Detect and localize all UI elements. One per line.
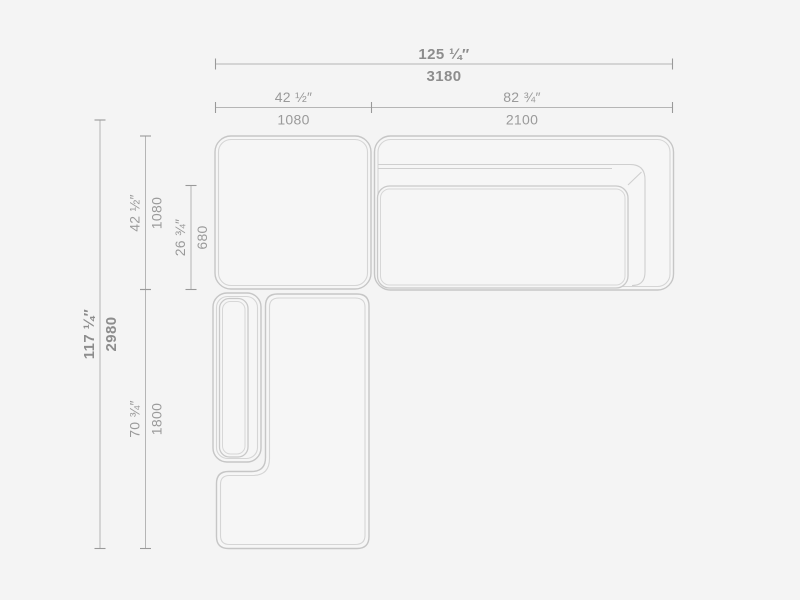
dim-chaise-length: 70 ¾″ 1800	[127, 290, 165, 549]
dimensions: 125 ¼″ 3180 42 ½″ 1080 82 ¾″ 2100 117 ¼″…	[81, 46, 673, 549]
dim-seat-depth-mm: 680	[194, 225, 210, 249]
dim-corner-depth-mm: 1080	[149, 197, 165, 229]
chaise-armrest-cushion-outline	[220, 299, 249, 458]
dim-chaise-length-inches: 70 ¾″	[127, 400, 143, 438]
dim-corner-depth-inches: 42 ½″	[127, 194, 143, 232]
dim-overall-depth-inches: 117 ¼″	[81, 309, 98, 359]
dim-section-widths: 42 ½″ 1080 82 ¾″ 2100	[216, 89, 673, 128]
dim-overall-width-inches: 125 ¼″	[418, 46, 469, 63]
dim-chaise-length-mm: 1800	[149, 403, 165, 435]
dim-seat-depth-inches: 26 ¾″	[172, 219, 188, 257]
dim-corner-depth: 42 ½″ 1080	[127, 136, 165, 290]
sofa-dimension-drawing: 125 ¼″ 3180 42 ½″ 1080 82 ¾″ 2100 117 ¼″…	[0, 0, 800, 600]
sofa-seat-cushion-outline	[378, 186, 629, 288]
sofa-plan	[213, 136, 674, 549]
dim-overall-width: 125 ¼″ 3180	[216, 46, 673, 85]
plan-view-svg: 125 ¼″ 3180 42 ½″ 1080 82 ¾″ 2100 117 ¼″…	[0, 0, 800, 600]
sofa-module	[375, 136, 674, 290]
dim-corner-width-inches: 42 ½″	[275, 89, 313, 105]
corner-module-outline	[215, 136, 371, 289]
dim-overall-depth-mm: 2980	[103, 317, 120, 352]
dim-overall-width-mm: 3180	[427, 68, 462, 85]
dim-overall-depth: 117 ¼″ 2980	[81, 120, 120, 549]
dim-corner-width-mm: 1080	[277, 112, 309, 128]
chaise-module	[213, 293, 369, 549]
dim-seat-depth: 26 ¾″ 680	[172, 186, 210, 290]
corner-module	[215, 136, 371, 289]
dim-sofa-width-inches: 82 ¾″	[503, 89, 541, 105]
dim-sofa-width-mm: 2100	[506, 112, 538, 128]
